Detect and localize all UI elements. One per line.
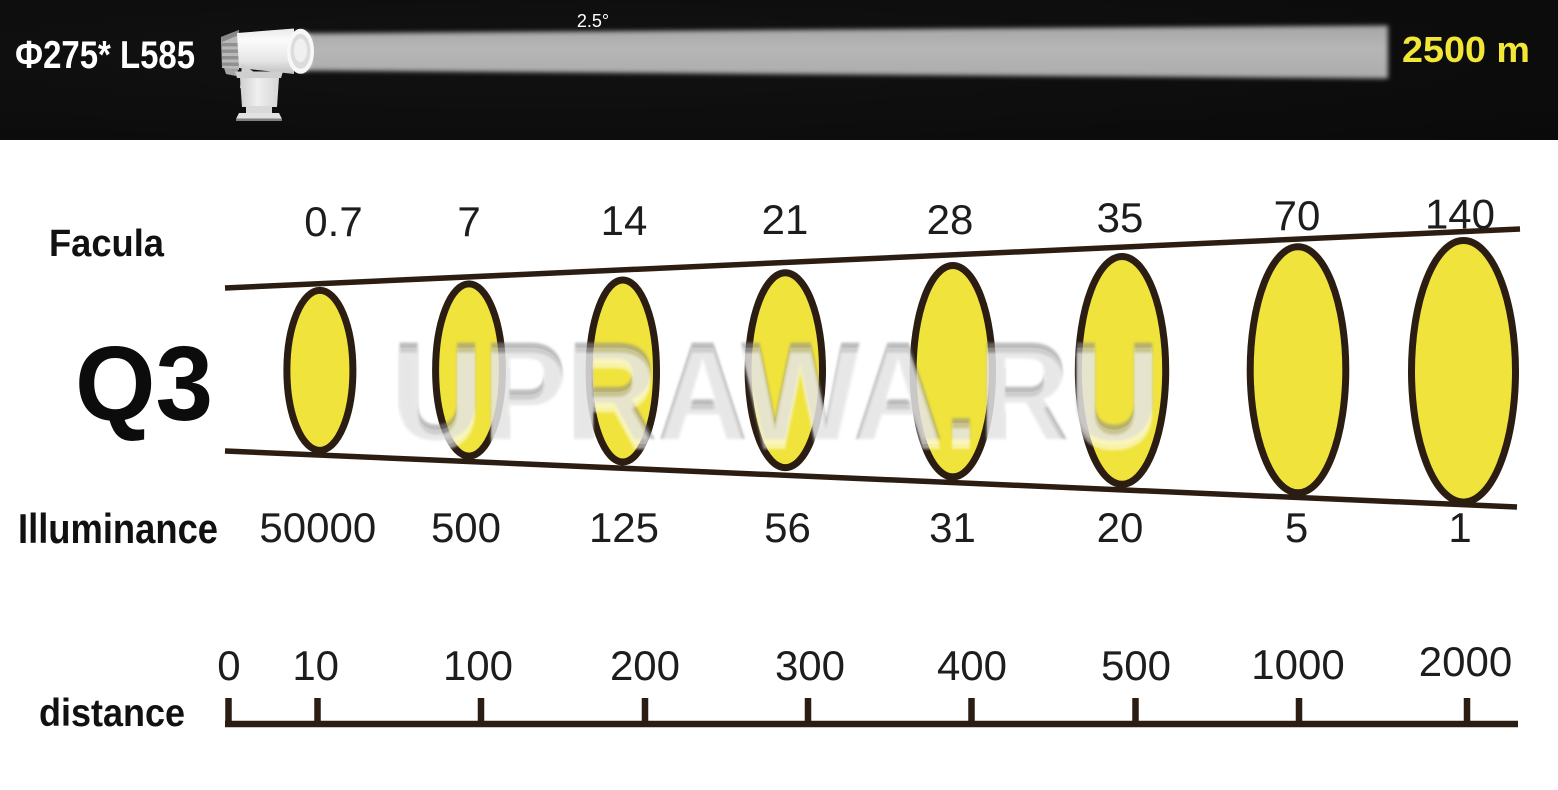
svg-text:10: 10 bbox=[292, 642, 339, 689]
svg-text:1: 1 bbox=[1448, 504, 1471, 551]
svg-text:56: 56 bbox=[764, 504, 811, 551]
svg-text:400: 400 bbox=[937, 642, 1007, 689]
svg-text:2000: 2000 bbox=[1419, 638, 1512, 685]
svg-text:125: 125 bbox=[589, 504, 659, 551]
svg-text:35: 35 bbox=[1097, 194, 1144, 241]
svg-text:5: 5 bbox=[1285, 504, 1308, 551]
svg-text:UPRAWA.RU: UPRAWA.RU bbox=[392, 317, 1160, 474]
svg-text:20: 20 bbox=[1097, 504, 1144, 551]
svg-text:2.5°: 2.5° bbox=[577, 11, 609, 31]
svg-text:Illuminance: Illuminance bbox=[18, 505, 218, 552]
svg-text:140: 140 bbox=[1425, 191, 1495, 238]
svg-text:200: 200 bbox=[610, 642, 680, 689]
svg-text:0.7: 0.7 bbox=[304, 198, 362, 245]
svg-text:21: 21 bbox=[762, 196, 809, 243]
svg-text:Facula: Facula bbox=[49, 223, 165, 265]
svg-text:14: 14 bbox=[601, 197, 648, 244]
svg-text:100: 100 bbox=[443, 642, 513, 689]
svg-text:0: 0 bbox=[217, 642, 240, 689]
svg-text:31: 31 bbox=[929, 504, 976, 551]
svg-text:2500 m: 2500 m bbox=[1402, 29, 1530, 70]
svg-text:7: 7 bbox=[457, 198, 480, 245]
svg-text:Q3: Q3 bbox=[75, 325, 213, 443]
svg-text:500: 500 bbox=[1101, 642, 1171, 689]
svg-text:70: 70 bbox=[1274, 192, 1321, 239]
svg-text:300: 300 bbox=[775, 642, 845, 689]
svg-text:500: 500 bbox=[431, 504, 501, 551]
svg-text:28: 28 bbox=[927, 196, 974, 243]
svg-text:distance: distance bbox=[39, 692, 185, 735]
svg-text:1000: 1000 bbox=[1251, 641, 1344, 688]
svg-text:Ф275* L585: Ф275* L585 bbox=[15, 34, 195, 77]
svg-text:50000: 50000 bbox=[259, 504, 376, 551]
